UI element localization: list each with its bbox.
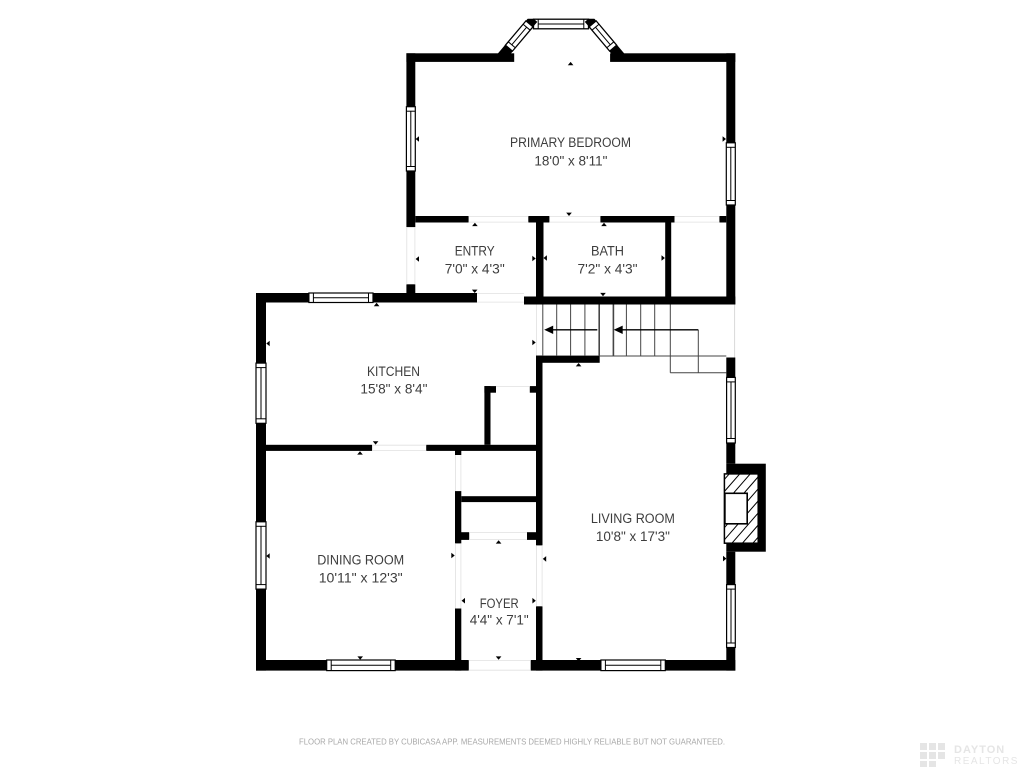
- svg-text:10'11" x 12'3": 10'11" x 12'3": [319, 570, 403, 586]
- svg-text:DINING ROOM: DINING ROOM: [317, 552, 404, 568]
- svg-text:FLOOR PLAN CREATED BY CUBICASA: FLOOR PLAN CREATED BY CUBICASA APP. MEAS…: [299, 738, 725, 747]
- svg-text:18'0" x 8'11": 18'0" x 8'11": [534, 154, 607, 170]
- svg-text:ENTRY: ENTRY: [455, 244, 495, 260]
- svg-text:FOYER: FOYER: [480, 596, 519, 612]
- svg-text:4'4" x 7'1": 4'4" x 7'1": [470, 613, 529, 629]
- svg-text:BATH: BATH: [591, 244, 624, 260]
- svg-text:10'8" x 17'3": 10'8" x 17'3": [596, 529, 670, 545]
- svg-text:15'8" x 8'4": 15'8" x 8'4": [360, 382, 427, 398]
- svg-text:DAYTON: DAYTON: [954, 744, 1005, 756]
- svg-text:7'2" x 4'3": 7'2" x 4'3": [578, 262, 638, 278]
- svg-text:7'0" x 4'3": 7'0" x 4'3": [445, 262, 505, 278]
- svg-text:PRIMARY BEDROOM: PRIMARY BEDROOM: [510, 135, 631, 151]
- svg-text:KITCHEN: KITCHEN: [367, 364, 420, 380]
- svg-text:LIVING ROOM: LIVING ROOM: [591, 511, 675, 527]
- svg-text:REALTORS: REALTORS: [954, 756, 1019, 767]
